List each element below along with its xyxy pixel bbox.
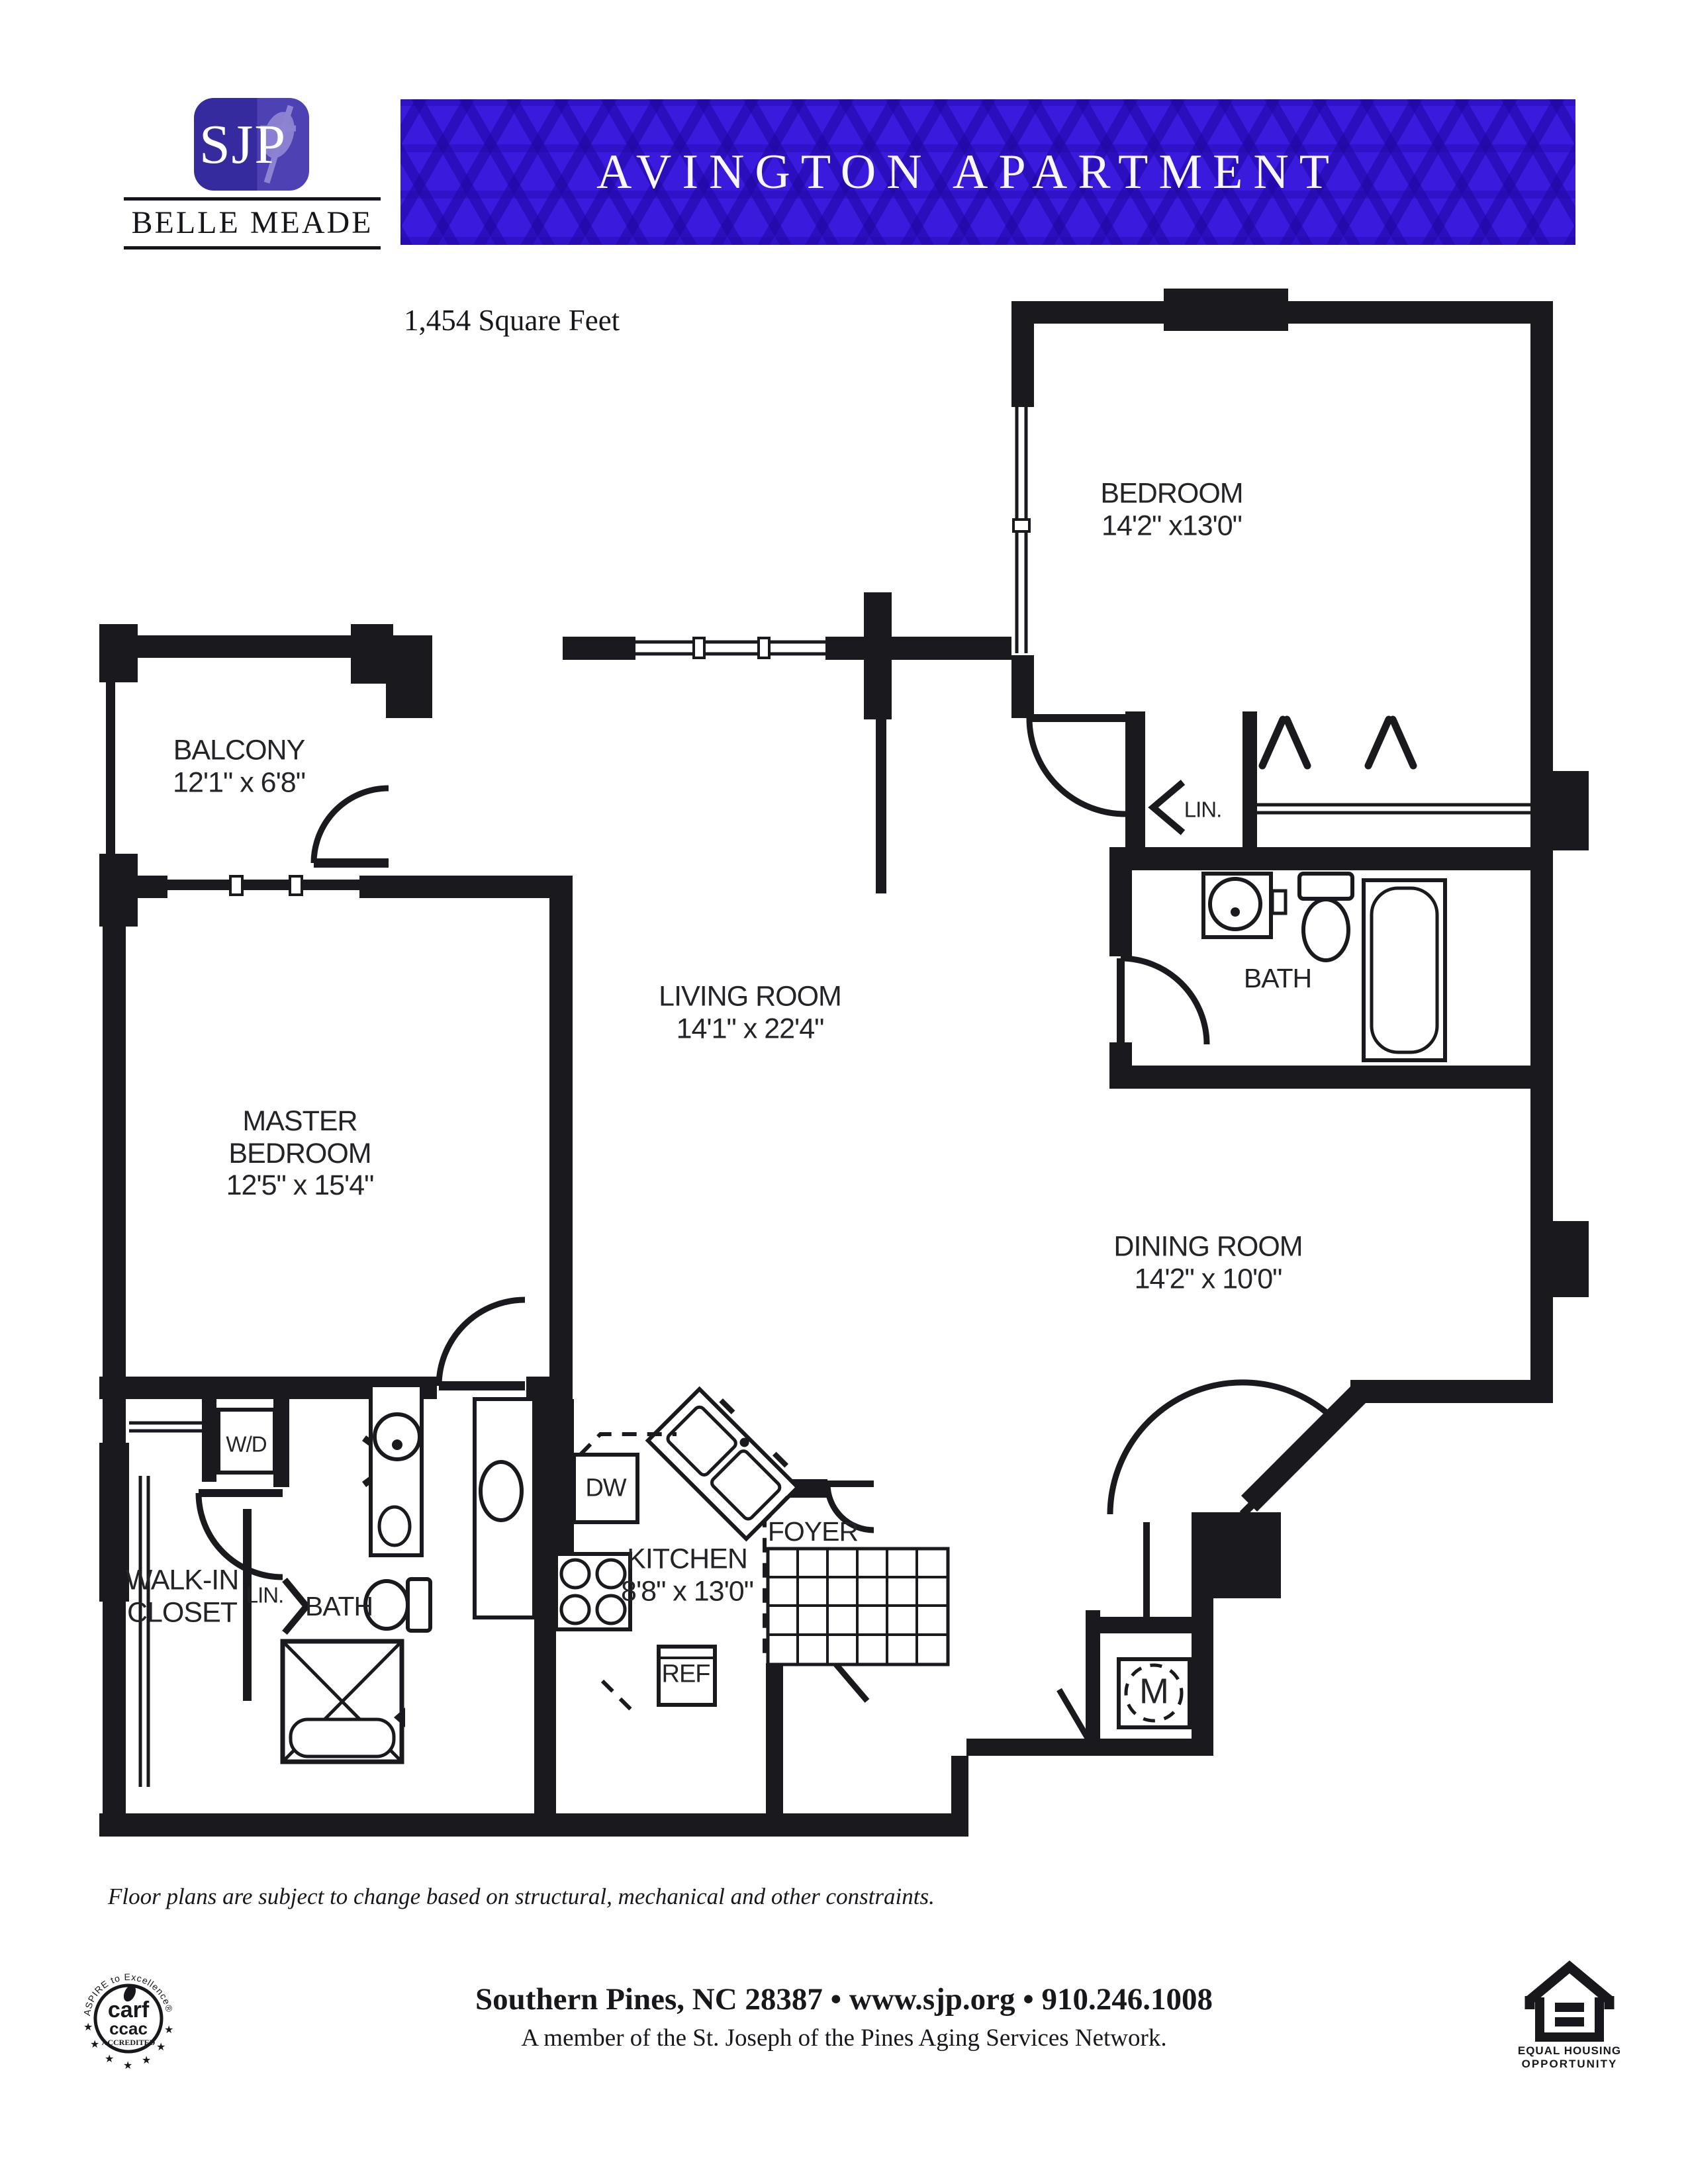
room-label-foyer: FOYER <box>768 1516 858 1547</box>
title-banner: AVINGTON APARTMENT <box>400 99 1575 245</box>
floorplan: BEDROOM14'2" x13'0" BALCONY12'1" x 6'8" … <box>99 285 1602 1893</box>
svg-text:ACCREDITED: ACCREDITED <box>102 2038 156 2047</box>
sjp-logo: SJP <box>194 98 309 191</box>
label-washer-dryer: W/D <box>226 1432 266 1456</box>
label-linen-upper: LIN. <box>1184 797 1222 821</box>
room-label-bath-master: BATH <box>305 1591 373 1621</box>
carf-ccac-seal-icon: ASPIRE to Excellence® carf ccac ACCREDIT… <box>77 1962 183 2077</box>
svg-text:EQUAL HOUSING: EQUAL HOUSING <box>1518 2044 1621 2057</box>
svg-text:★: ★ <box>164 2025 173 2036</box>
room-label-dining: DINING ROOM14'2" x 10'0" <box>1113 1230 1302 1295</box>
room-label-balcony: BALCONY12'1" x 6'8" <box>173 734 305 798</box>
sink-icon <box>1210 879 1260 929</box>
room-label-bath-upper: BATH <box>1244 963 1311 993</box>
label-mechanical: M <box>1139 1671 1168 1711</box>
room-label-living: LIVING ROOM14'1" x 22'4" <box>659 980 841 1044</box>
room-label-bedroom: BEDROOM14'2" x13'0" <box>1100 477 1243 541</box>
room-label-walkin: WALK-INCLOSET <box>126 1564 239 1628</box>
svg-text:★: ★ <box>156 2042 165 2053</box>
hanger-icons <box>1262 719 1413 766</box>
page-title: AVINGTON APARTMENT <box>400 144 1575 201</box>
sink-icon <box>375 1414 420 1459</box>
tile-grid <box>768 1549 948 1664</box>
room-label-master: MASTERBEDROOM12'5" x 15'4" <box>226 1105 374 1202</box>
svg-text:OPPORTUNITY: OPPORTUNITY <box>1522 2058 1618 2070</box>
logo-monogram: SJP <box>194 98 309 191</box>
brand-wordmark: BELLE MEADE <box>124 197 381 250</box>
window-mullions <box>230 520 1029 895</box>
label-refrigerator: REF <box>662 1661 710 1689</box>
disclaimer-text: Floor plans are subject to change based … <box>108 1884 935 1910</box>
svg-text:★: ★ <box>90 2039 99 2050</box>
equal-housing-icon: EQUAL HOUSING OPPORTUNITY <box>1513 1956 1626 2075</box>
sink-icon <box>481 1462 522 1520</box>
label-linen-master: LIN. <box>246 1582 284 1607</box>
footer-address-line: Southern Pines, NC 28387 • www.sjp.org •… <box>0 1981 1688 2017</box>
svg-text:★: ★ <box>105 2054 114 2065</box>
toilet-icon <box>1303 899 1348 960</box>
upper-bath-fixtures <box>1203 874 1445 1060</box>
toilet-tank-icon <box>408 1579 430 1631</box>
room-label-kitchen: KITCHEN8'8" x 13'0" <box>621 1543 753 1607</box>
toilet-tank-icon <box>1299 874 1352 899</box>
svg-text:★: ★ <box>142 2055 151 2066</box>
svg-text:★: ★ <box>83 2022 93 2033</box>
footer-network-line: A member of the St. Joseph of the Pines … <box>0 2024 1688 2052</box>
svg-text:ccac: ccac <box>109 2019 148 2038</box>
floorplan-drawing <box>99 285 1602 1893</box>
label-dishwasher: DW <box>585 1475 626 1503</box>
svg-text:★: ★ <box>123 2060 132 2071</box>
